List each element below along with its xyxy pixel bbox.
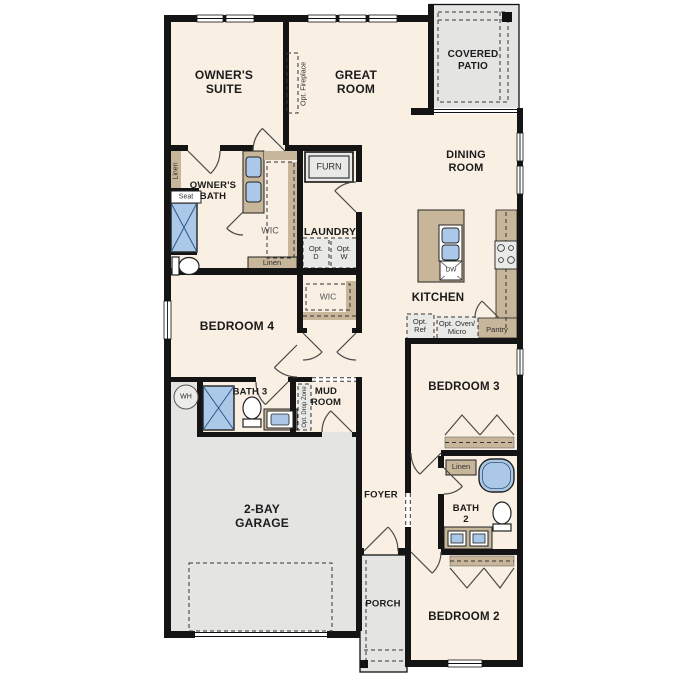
window — [369, 15, 397, 22]
seat-label: Seat — [179, 193, 193, 200]
window — [226, 15, 254, 22]
owners-wic-label: WIC — [261, 226, 279, 235]
window — [197, 15, 223, 22]
owners-toilet — [172, 257, 199, 275]
window — [517, 133, 523, 161]
window — [448, 660, 482, 667]
garage-label: 2-BAY GARAGE — [235, 502, 289, 530]
dishwasher-label: DW — [446, 268, 457, 275]
bedroom3-label: BEDROOM 3 — [428, 381, 499, 395]
opt-drop-zone-label: Opt. Drop Zone — [301, 386, 307, 427]
dining-room-label: DINING ROOM — [446, 149, 486, 175]
opt-washer-label: Opt. W — [337, 245, 351, 261]
linen-bath-label: Linen — [172, 162, 179, 179]
patio-column — [502, 12, 512, 22]
floorplan-linework — [0, 0, 687, 687]
linen-bath2-label: Linen — [452, 463, 470, 471]
stove — [495, 241, 517, 269]
bedroom4-wic-label: WIC — [320, 293, 337, 302]
sliding-door — [434, 108, 517, 114]
bath2-label: BATH 2 — [453, 503, 479, 525]
porch-column — [360, 660, 368, 668]
kitchen-label: KITCHEN — [412, 292, 465, 306]
owners-suite-label: OWNER'S SUITE — [195, 68, 253, 96]
cased-opening — [312, 377, 356, 382]
opt-dryer-label: Opt. D — [309, 245, 323, 261]
bath2-toilet — [493, 502, 511, 531]
covered-patio-label: COVERED PATIO — [448, 49, 499, 73]
great-room-label: GREAT ROOM — [335, 68, 377, 96]
window — [339, 15, 366, 22]
floor-plan: OWNER'S SUITE GREAT ROOM COVERED PATIO D… — [0, 0, 687, 687]
bath3-shower — [203, 386, 234, 430]
bath3-toilet — [243, 397, 261, 427]
opt-fireplace-label: Opt. Fireplace — [300, 62, 307, 106]
bath3-sink — [267, 411, 293, 428]
foyer-label: FOYER — [364, 489, 398, 500]
mud-room-label: MUD ROOM — [311, 386, 341, 408]
owners-bath-label: OWNER'S BATH — [190, 180, 236, 202]
linen-hall-label: Linen — [263, 259, 281, 267]
porch-floor — [360, 555, 407, 672]
garage-door-opening — [195, 631, 327, 638]
opt-oven-micro-label: Opt. Oven/ Micro — [439, 320, 475, 336]
bathtub — [479, 459, 514, 492]
bedroom4-label: BEDROOM 4 — [200, 319, 274, 333]
bedroom2-label: BEDROOM 2 — [428, 611, 499, 625]
window — [164, 301, 171, 339]
window — [517, 166, 523, 194]
pantry-label: Pantry — [486, 326, 508, 334]
cased-opening — [405, 493, 411, 527]
window — [308, 15, 336, 22]
furnace-label: FURN — [317, 162, 342, 171]
opt-ref-label: Opt. Ref — [413, 318, 427, 334]
porch-label: PORCH — [365, 598, 400, 609]
window — [517, 349, 523, 375]
kitchen-sink — [439, 225, 462, 261]
water-heater-label: WH — [180, 393, 192, 400]
laundry-label: LAUNDRY — [304, 226, 356, 238]
bath3-label: BATH 3 — [233, 386, 268, 397]
